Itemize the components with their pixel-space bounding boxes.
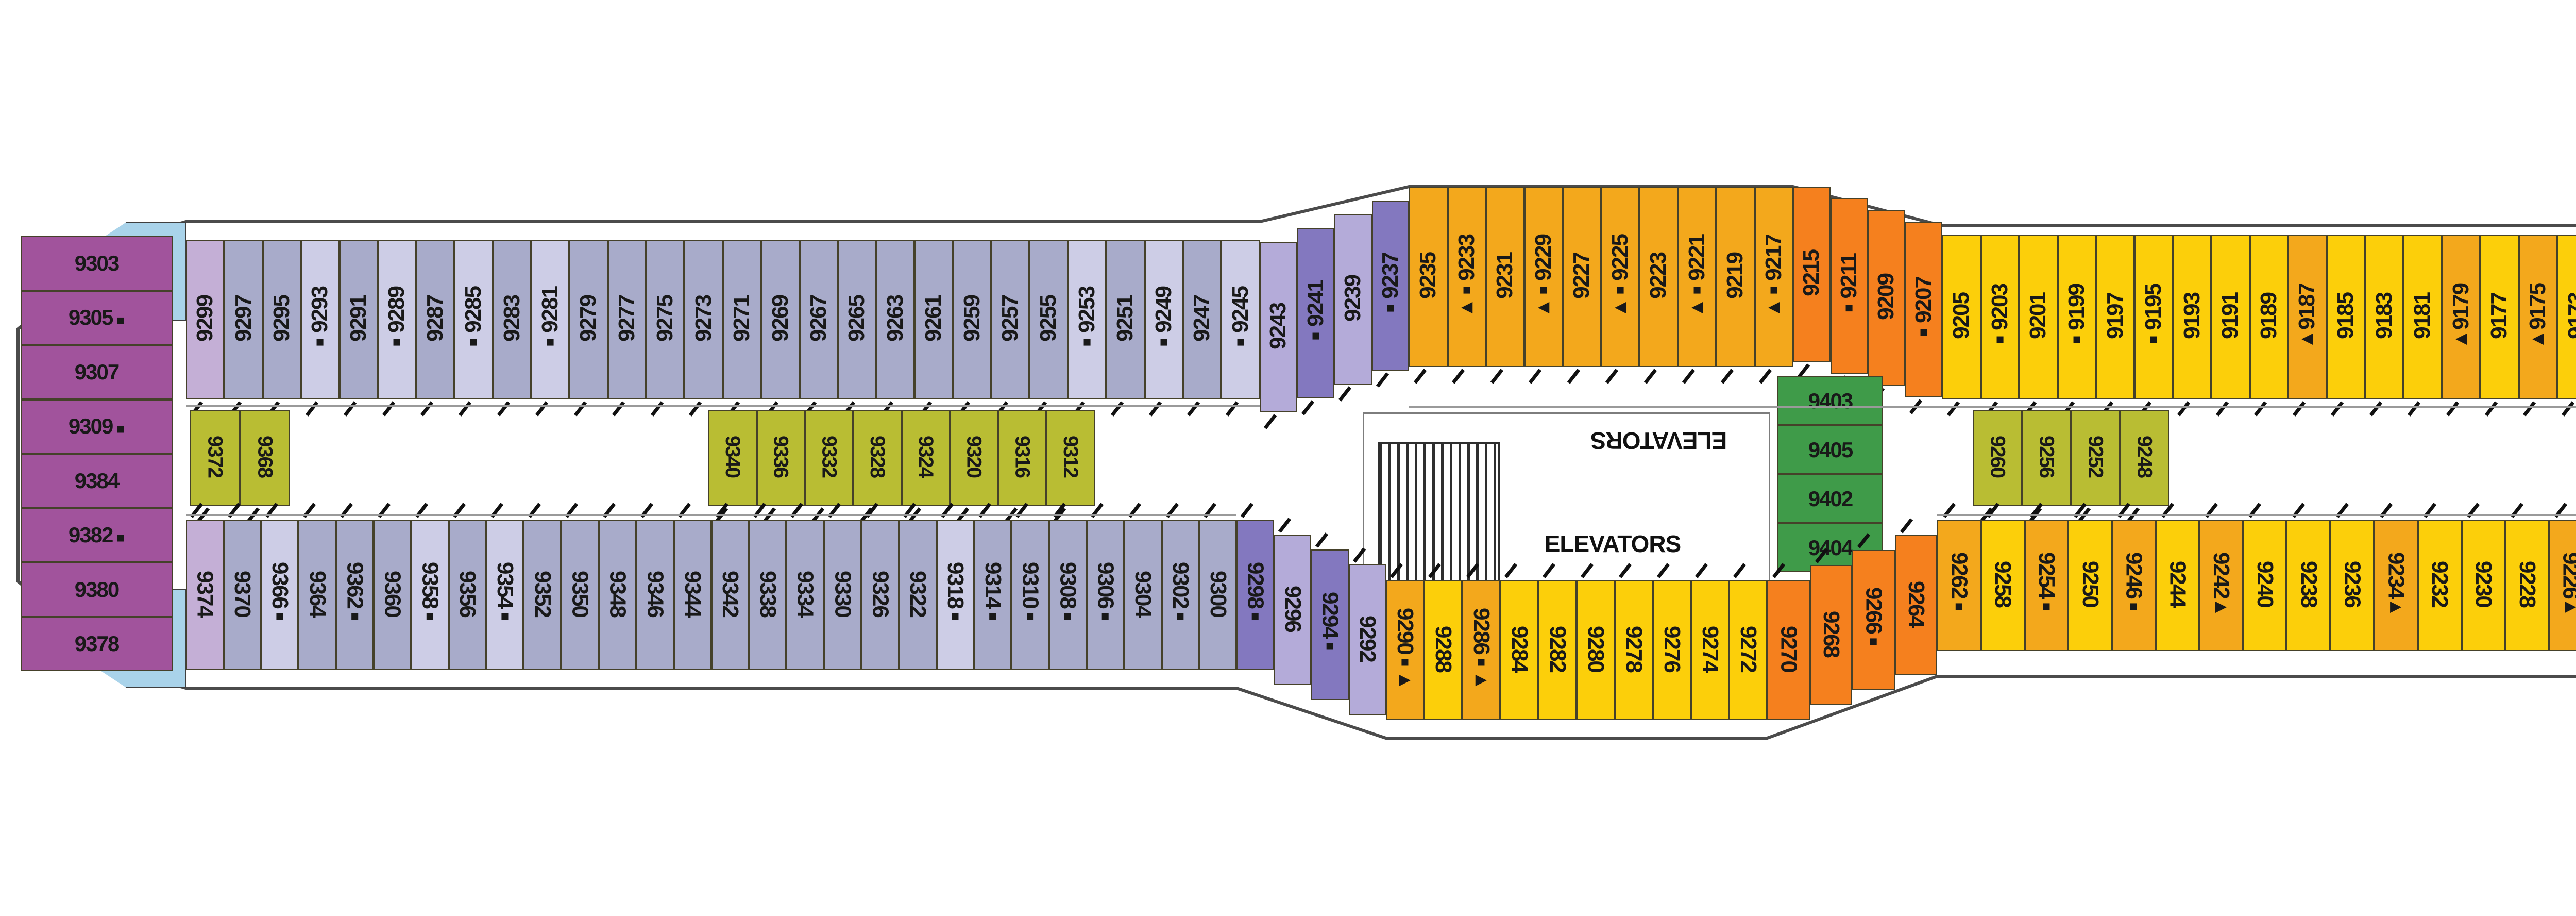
corridor-line — [1937, 514, 2576, 516]
cabin-9340[interactable]: 9340 — [708, 410, 757, 506]
cabin-9277[interactable]: 9277 — [608, 240, 646, 399]
cabin-9292[interactable]: 9292 — [1349, 564, 1386, 715]
cabin-9300[interactable]: 9300 — [1199, 520, 1236, 670]
cabin-9266[interactable]: 9266■ — [1852, 550, 1895, 690]
cabin-9291[interactable]: 9291 — [340, 240, 378, 399]
cabin-9307[interactable]: 9307 — [21, 345, 173, 399]
row-bottom-yellow-left: 9290■▶92889286■▶928492829280927892769274… — [1386, 580, 1767, 720]
cabin-9230[interactable]: 9230 — [2462, 520, 2505, 651]
cabin-9209[interactable]: 9209 — [1868, 210, 1905, 386]
cabin-9187[interactable]: ▶9187 — [2288, 235, 2327, 399]
row-bottom-center: 9262■92589254■92509246■92449242▶92409238… — [1937, 520, 2576, 651]
cabin-9177[interactable]: 9177 — [2480, 235, 2519, 399]
row-bottom-left: 937493709366■93649362■93609358■93569354■… — [186, 520, 1236, 670]
cabin-9175[interactable]: ▶9175 — [2519, 235, 2557, 399]
cabin-9314[interactable]: 9314■ — [974, 520, 1011, 670]
aft-column: 93039305■93079309■93849382■93809378 — [21, 236, 173, 671]
cabin-9219[interactable]: 9219 — [1716, 187, 1755, 367]
cabin-9197[interactable]: 9197 — [2096, 235, 2134, 399]
cabin-9268[interactable]: 9268 — [1810, 565, 1853, 705]
cabin-9271[interactable]: 9271 — [723, 240, 761, 399]
cabin-9225[interactable]: ▶■9225 — [1601, 187, 1640, 367]
cabin-9185[interactable]: 9185 — [2327, 235, 2365, 399]
cabin-9260[interactable]: 9260 — [1973, 410, 2022, 506]
cabin-9298[interactable]: 9298■ — [1236, 520, 1274, 670]
cabin-9247[interactable]: 9247 — [1183, 240, 1221, 399]
cabin-9265[interactable]: 9265 — [838, 240, 876, 399]
cabin-9250[interactable]: 9250 — [2068, 520, 2112, 651]
cabin-9310[interactable]: 9310■ — [1011, 520, 1049, 670]
cabin-9344[interactable]: 9344 — [674, 520, 711, 670]
cabin-9205[interactable]: 9205 — [1942, 235, 1981, 399]
cabin-9238[interactable]: 9238 — [2286, 520, 2330, 651]
cabin-9282[interactable]: 9282 — [1538, 580, 1577, 720]
cabin-9295[interactable]: 9295 — [263, 240, 301, 399]
cabin-9360[interactable]: 9360 — [374, 520, 411, 670]
cabin-9269[interactable]: 9269 — [761, 240, 799, 399]
cabin-9235[interactable]: 9235 — [1409, 187, 1448, 367]
cabin-9245[interactable]: ■9245 — [1221, 240, 1259, 399]
cabin-9240[interactable]: 9240 — [2243, 520, 2287, 651]
cabin-9258[interactable]: 9258 — [1981, 520, 2025, 651]
cabin-9243[interactable]: 9243 — [1260, 242, 1297, 412]
cabin-9302[interactable]: 9302■ — [1162, 520, 1199, 670]
cabin-9249[interactable]: ■9249 — [1145, 240, 1183, 399]
cabin-9402[interactable]: 9402 — [1777, 474, 1883, 523]
cabin-9334[interactable]: 9334 — [786, 520, 824, 670]
cabin-9332[interactable]: 9332 — [805, 410, 854, 506]
cabin-9179[interactable]: ▶9179 — [2442, 235, 2481, 399]
cabin-9215[interactable]: 9215 — [1793, 187, 1831, 362]
corridor-line — [1409, 406, 2576, 408]
cabin-9294[interactable]: 9294■ — [1311, 549, 1349, 700]
cabin-9350[interactable]: 9350 — [561, 520, 599, 670]
cabin-9231[interactable]: 9231 — [1486, 187, 1524, 367]
cabin-9228[interactable]: 9228 — [2505, 520, 2549, 651]
cabin-9241[interactable]: ■9241 — [1297, 228, 1335, 398]
cabin-9316[interactable]: 9316 — [998, 410, 1047, 506]
cabin-9366[interactable]: 9366■ — [261, 520, 299, 670]
cabin-9346[interactable]: 9346 — [636, 520, 674, 670]
cabin-9193[interactable]: 9193 — [2173, 235, 2211, 399]
cabin-9303[interactable]: 9303 — [21, 236, 173, 291]
cabin-9283[interactable]: 9283 — [493, 240, 531, 399]
cabin-9236[interactable]: 9236 — [2330, 520, 2374, 651]
cabin-9358[interactable]: 9358■ — [411, 520, 449, 670]
cabin-9211[interactable]: ■9211 — [1831, 198, 1868, 374]
row-top-amber: 9235▶■92339231▶■92299227▶■92259223▶■9221… — [1409, 187, 1793, 367]
cabin-9272[interactable]: 9272 — [1729, 580, 1767, 720]
cabin-9226[interactable]: 9226▶ — [2549, 520, 2576, 651]
cabin-9239[interactable]: 9239 — [1334, 214, 1372, 385]
corridor-line — [186, 405, 1260, 407]
cabin-9273[interactable]: 9273 — [684, 240, 722, 399]
cabin-9232[interactable]: 9232 — [2418, 520, 2462, 651]
cabin-9305[interactable]: 9305■ — [21, 291, 173, 345]
cabin-9229[interactable]: ▶■9229 — [1524, 187, 1563, 367]
cabin-9380[interactable]: 9380 — [21, 562, 173, 617]
cabin-9203[interactable]: ■9203 — [1981, 235, 2020, 399]
cabin-9278[interactable]: 9278 — [1615, 580, 1653, 720]
cabin-9348[interactable]: 9348 — [599, 520, 636, 670]
cabin-9201[interactable]: 9201 — [2019, 235, 2058, 399]
cabin-9304[interactable]: 9304 — [1124, 520, 1162, 670]
cabin-9290[interactable]: 9290■▶ — [1386, 580, 1424, 720]
cabin-9372[interactable]: 9372 — [190, 410, 240, 506]
row-mid-left-a: 93729368 — [190, 410, 290, 506]
cabin-9262[interactable]: 9262■ — [1937, 520, 1981, 651]
cabin-9246[interactable]: 9246■ — [2112, 520, 2156, 651]
row-mid-left-b: 93409336933293289324932093169312 — [708, 410, 1095, 506]
cabin-9251[interactable]: 9251 — [1106, 240, 1144, 399]
cabin-9382[interactable]: 9382■ — [21, 508, 173, 563]
row-top-center: 9205■92039201■91999197■9195919391919189▶… — [1942, 235, 2576, 399]
cabin-9308[interactable]: 9308■ — [1049, 520, 1087, 670]
deck-plan: 9301 ■ 9376 ■ ELEVATORS ELEVATORS ELEVAT… — [0, 0, 2576, 916]
cabin-9173[interactable]: 9173 — [2557, 235, 2576, 399]
cabin-9255[interactable]: 9255 — [1029, 240, 1067, 399]
elevators-label: ELEVATORS — [1551, 418, 1767, 464]
cabin-9356[interactable]: 9356 — [449, 520, 486, 670]
cabin-9267[interactable]: 9267 — [800, 240, 838, 399]
cabin-9352[interactable]: 9352 — [523, 520, 561, 670]
cabin-9336[interactable]: 9336 — [757, 410, 805, 506]
cabin-9296[interactable]: 9296 — [1274, 535, 1312, 685]
cabin-9223[interactable]: 9223 — [1639, 187, 1678, 367]
cabin-9287[interactable]: 9287 — [416, 240, 454, 399]
cabin-9253[interactable]: ■9253 — [1068, 240, 1106, 399]
row-top-orange-slant: 9215■92119209■9207 — [1793, 187, 1942, 362]
cabin-9221[interactable]: ▶■9221 — [1678, 187, 1717, 367]
cabin-9354[interactable]: 9354■ — [486, 520, 524, 670]
cabin-9374[interactable]: 9374 — [186, 520, 224, 670]
cabin-9289[interactable]: ■9289 — [378, 240, 416, 399]
cabin-9286[interactable]: 9286■▶ — [1462, 580, 1500, 720]
cabin-9263[interactable]: 9263 — [876, 240, 914, 399]
cabin-9259[interactable]: 9259 — [953, 240, 991, 399]
cabin-9270[interactable]: 9270 — [1767, 580, 1810, 720]
cabin-9324[interactable]: 9324 — [902, 410, 950, 506]
cabin-9405[interactable]: 9405 — [1777, 425, 1883, 474]
cabin-9326[interactable]: 9326 — [861, 520, 899, 670]
elevators-label: ELEVATORS — [1504, 521, 1721, 567]
cabin-9297[interactable]: 9297 — [224, 240, 262, 399]
cabin-9237[interactable]: ■9237 — [1372, 201, 1410, 371]
cabin-9362[interactable]: 9362■ — [336, 520, 374, 670]
cabin-9199[interactable]: ■9199 — [2058, 235, 2096, 399]
cabin-9281[interactable]: ■9281 — [531, 240, 569, 399]
cabin-9378[interactable]: 9378 — [21, 617, 173, 672]
cabin-9368[interactable]: 9368 — [240, 410, 290, 506]
cabin-9284[interactable]: 9284 — [1500, 580, 1538, 720]
cabin-9330[interactable]: 9330 — [824, 520, 861, 670]
cabin-9328[interactable]: 9328 — [853, 410, 902, 506]
cabin-9403[interactable]: 9403 — [1777, 376, 1883, 425]
cabin-9264[interactable]: 9264 — [1895, 535, 1938, 675]
cabin-9257[interactable]: 9257 — [991, 240, 1029, 399]
cabin-9370[interactable]: 9370 — [224, 520, 261, 670]
corridor-line — [186, 514, 1236, 516]
cabin-9342[interactable]: 9342 — [711, 520, 749, 670]
cabin-9293[interactable]: ■9293 — [301, 240, 339, 399]
cabin-9306[interactable]: 9306■ — [1087, 520, 1124, 670]
hull-outline — [0, 0, 2576, 916]
cabin-9322[interactable]: 9322 — [899, 520, 937, 670]
row-bottom-orange-slant: 927092689266■9264 — [1767, 580, 1937, 720]
cabin-9252[interactable]: 9252 — [2071, 410, 2120, 506]
cabin-9299[interactable]: 9299 — [186, 240, 224, 399]
cabin-9320[interactable]: 9320 — [950, 410, 998, 506]
cabin-9285[interactable]: ■9285 — [454, 240, 493, 399]
cabin-9338[interactable]: 9338 — [749, 520, 786, 670]
row-top-purple-slant: 9243■92419239■9237 — [1260, 242, 1409, 412]
cabin-9242[interactable]: 9242▶ — [2199, 520, 2243, 651]
cabin-9256[interactable]: 9256 — [2022, 410, 2071, 506]
row-bottom-purple-slant: 9298■92969294■9292 — [1236, 520, 1386, 670]
cabin-9207[interactable]: ■9207 — [1905, 222, 1943, 397]
cabin-9254[interactable]: 9254■ — [2025, 520, 2069, 651]
cabin-9275[interactable]: 9275 — [646, 240, 684, 399]
cabin-9312[interactable]: 9312 — [1046, 410, 1095, 506]
cabin-9276[interactable]: 9276 — [1653, 580, 1691, 720]
row-mid-center-a: 9260925692529248 — [1973, 410, 2169, 506]
cabin-9233[interactable]: ▶■9233 — [1448, 187, 1486, 367]
cabin-9217[interactable]: ▶■9217 — [1755, 187, 1793, 367]
cabin-9309[interactable]: 9309■ — [21, 399, 173, 454]
cabin-9288[interactable]: 9288 — [1424, 580, 1462, 720]
cabin-9191[interactable]: 9191 — [2211, 235, 2250, 399]
cabin-9261[interactable]: 9261 — [914, 240, 953, 399]
cabin-9189[interactable]: 9189 — [2250, 235, 2289, 399]
cabin-9183[interactable]: 9183 — [2365, 235, 2403, 399]
cabin-9274[interactable]: 9274 — [1691, 580, 1729, 720]
cabin-9280[interactable]: 9280 — [1577, 580, 1615, 720]
cabin-9195[interactable]: ■9195 — [2134, 235, 2173, 399]
cabin-9227[interactable]: 9227 — [1563, 187, 1601, 367]
cabin-9364[interactable]: 9364 — [298, 520, 336, 670]
cabin-9279[interactable]: 9279 — [569, 240, 607, 399]
cabin-9248[interactable]: 9248 — [2120, 410, 2169, 506]
cabin-9234[interactable]: 9234▶ — [2374, 520, 2418, 651]
cabin-9318[interactable]: 9318■ — [937, 520, 974, 670]
cabin-9181[interactable]: 9181 — [2403, 235, 2442, 399]
green-col: 9403940594029404 — [1777, 376, 1883, 572]
row-top-left: 929992979295■92939291■92899287■92859283■… — [186, 240, 1260, 399]
cabin-9244[interactable]: 9244 — [2156, 520, 2199, 651]
cabin-9384[interactable]: 9384 — [21, 454, 173, 508]
